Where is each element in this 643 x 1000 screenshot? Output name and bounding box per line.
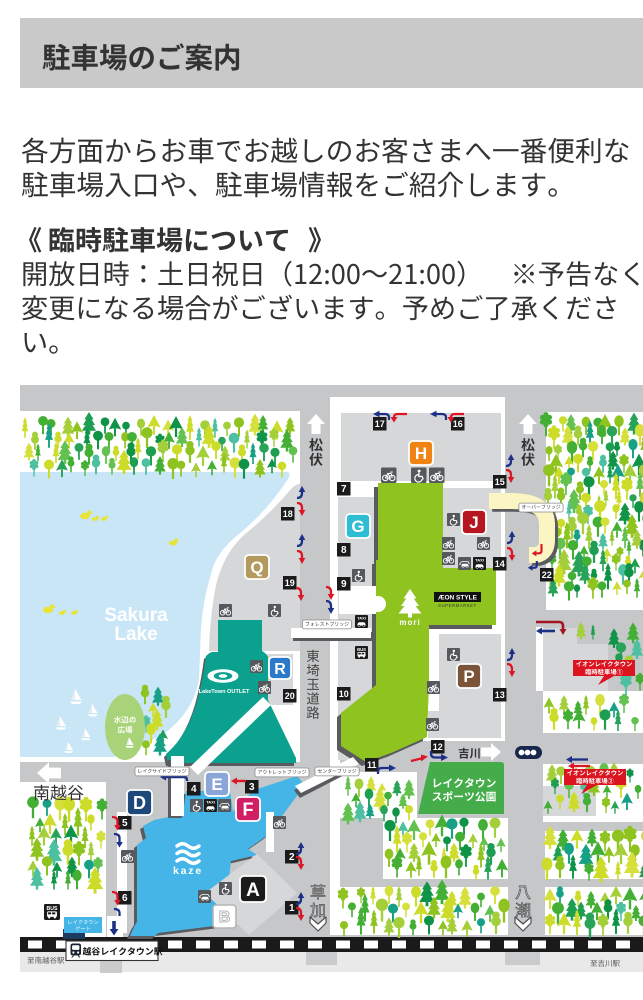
svg-text:TAXI: TAXI <box>206 800 215 805</box>
svg-text:4: 4 <box>191 784 197 795</box>
svg-text:11: 11 <box>367 760 377 770</box>
svg-text:18: 18 <box>283 509 293 519</box>
svg-text:6: 6 <box>122 893 128 904</box>
svg-text:J: J <box>469 513 478 532</box>
svg-text:B: B <box>219 909 231 926</box>
svg-text:A: A <box>246 880 260 901</box>
svg-text:BUS: BUS <box>47 906 58 912</box>
svg-text:Sakura: Sakura <box>104 605 168 626</box>
svg-text:5: 5 <box>122 818 128 829</box>
svg-text:E: E <box>211 775 222 794</box>
svg-text:2: 2 <box>289 852 295 863</box>
svg-text:Q: Q <box>250 558 263 577</box>
svg-text:10: 10 <box>339 689 349 699</box>
svg-text:LakeTown OUTLET: LakeTown OUTLET <box>199 689 250 695</box>
svg-text:SUPERMARKET: SUPERMARKET <box>438 603 476 608</box>
svg-text:F: F <box>243 799 254 819</box>
svg-text:ÆON STYLE: ÆON STYLE <box>438 595 478 602</box>
svg-text:R: R <box>274 661 286 678</box>
svg-text:13: 13 <box>495 690 505 700</box>
svg-text:P: P <box>463 667 474 686</box>
svg-text:19: 19 <box>285 578 295 588</box>
svg-text:Lake: Lake <box>114 624 157 645</box>
svg-text:1: 1 <box>289 903 295 914</box>
svg-text:16: 16 <box>453 419 463 429</box>
svg-text:H: H <box>415 444 427 463</box>
svg-text:3: 3 <box>249 782 255 793</box>
svg-text:kaze: kaze <box>173 865 203 877</box>
svg-text:12: 12 <box>433 742 443 752</box>
svg-text:14: 14 <box>495 559 505 569</box>
svg-text:TAXI: TAXI <box>475 558 484 563</box>
svg-text:TAXI: TAXI <box>357 616 366 621</box>
svg-text:9: 9 <box>341 579 347 590</box>
svg-text:20: 20 <box>285 691 295 701</box>
svg-text:22: 22 <box>542 570 552 580</box>
svg-text:15: 15 <box>495 477 505 487</box>
svg-text:D: D <box>133 793 146 813</box>
svg-text:BUS: BUS <box>357 647 366 652</box>
svg-text:G: G <box>351 517 364 536</box>
svg-text:7: 7 <box>341 484 347 495</box>
svg-text:mori: mori <box>399 618 420 627</box>
svg-text:17: 17 <box>375 419 385 429</box>
svg-text:8: 8 <box>341 545 347 556</box>
